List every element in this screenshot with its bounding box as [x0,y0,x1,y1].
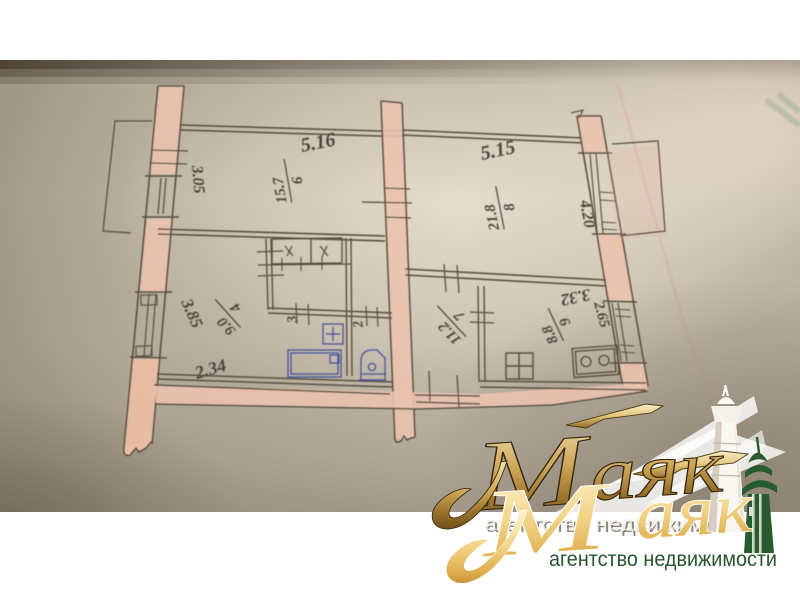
svg-text:аяк: аяк [632,467,757,555]
svg-text:3.05: 3.05 [188,164,207,194]
svg-text:агентство недвижимости: агентство недвижимости [549,548,777,571]
